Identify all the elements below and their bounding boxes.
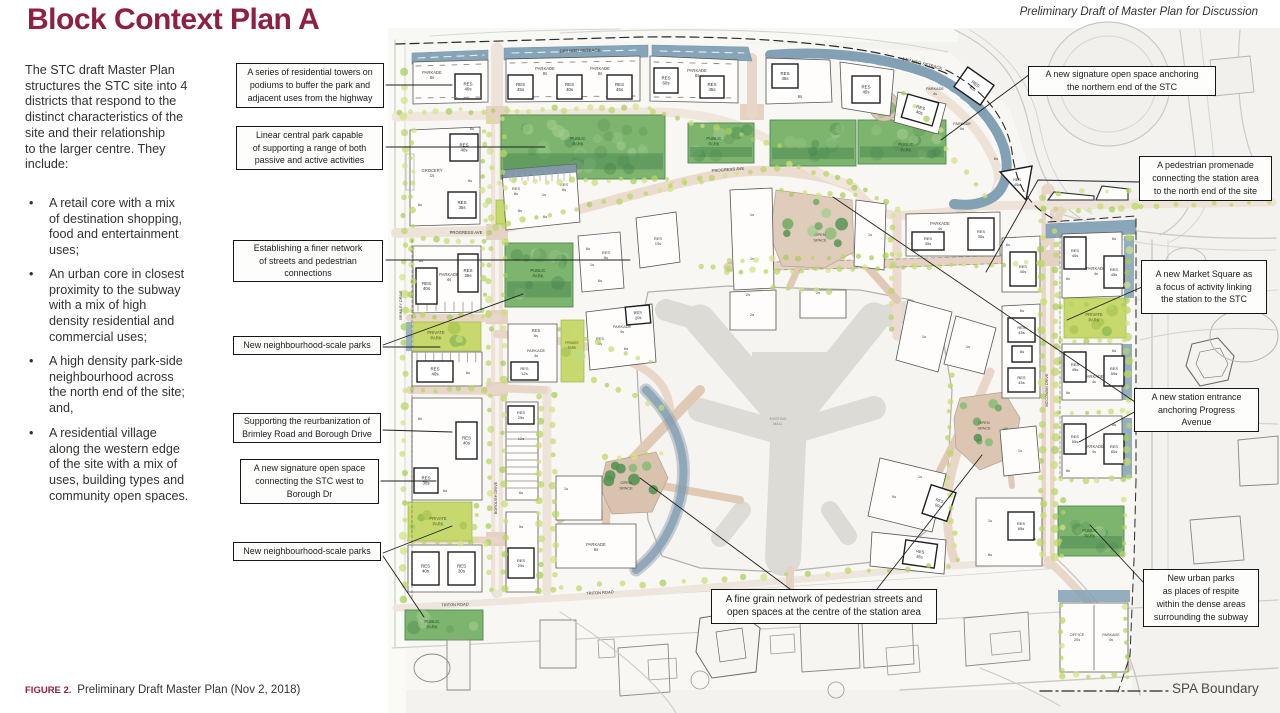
svg-text:2a: 2a <box>750 312 755 317</box>
svg-text:1s: 1s <box>868 232 872 237</box>
svg-text:12s: 12s <box>521 371 527 376</box>
svg-text:PUBLIC: PUBLIC <box>898 142 913 147</box>
svg-text:1s: 1s <box>564 486 568 491</box>
svg-text:45s: 45s <box>616 87 624 92</box>
svg-text:8s: 8s <box>468 178 472 183</box>
svg-text:40s: 40s <box>423 286 431 291</box>
svg-text:RES: RES <box>1013 178 1021 182</box>
svg-text:10s: 10s <box>655 241 661 246</box>
svg-text:PRIVATE: PRIVATE <box>429 516 447 521</box>
svg-text:45s: 45s <box>1018 380 1024 385</box>
svg-text:6s: 6s <box>466 370 470 375</box>
svg-text:25s: 25s <box>464 273 472 278</box>
svg-text:SPACE: SPACE <box>619 486 633 491</box>
svg-text:6s: 6s <box>1066 390 1070 395</box>
svg-text:40s: 40s <box>1072 253 1078 258</box>
svg-text:40s: 40s <box>464 87 472 92</box>
svg-text:1s: 1s <box>988 518 992 523</box>
svg-text:PARKADE: PARKADE <box>926 87 944 91</box>
svg-text:6s: 6s <box>418 202 422 207</box>
svg-text:12s: 12s <box>518 436 524 441</box>
svg-text:45s: 45s <box>862 90 870 95</box>
svg-text:45s: 45s <box>708 87 716 92</box>
svg-text:PUBLIC: PUBLIC <box>530 268 545 273</box>
svg-text:6s: 6s <box>598 278 602 283</box>
svg-text:2s: 2s <box>746 292 750 297</box>
svg-text:8s: 8s <box>418 416 422 421</box>
svg-text:PARK: PARK <box>900 148 911 153</box>
svg-text:PARK: PARK <box>430 336 441 341</box>
svg-text:6s: 6s <box>994 156 998 161</box>
svg-text:20s: 20s <box>635 315 642 321</box>
svg-text:6s: 6s <box>960 127 964 131</box>
svg-text:40s: 40s <box>1020 269 1026 274</box>
svg-text:6s: 6s <box>1112 236 1116 241</box>
svg-text:6s: 6s <box>1006 242 1010 247</box>
svg-text:45s: 45s <box>517 87 525 92</box>
svg-text:PARK: PARK <box>532 274 543 279</box>
svg-text:PRIVATE: PRIVATE <box>427 330 445 335</box>
svg-text:6s: 6s <box>1020 308 1024 313</box>
svg-text:40s: 40s <box>460 148 468 153</box>
svg-text:4s: 4s <box>1109 638 1113 642</box>
svg-text:PARK: PARK <box>1088 318 1099 323</box>
svg-text:PARK: PARK <box>426 625 437 630</box>
svg-text:MALL: MALL <box>773 422 782 426</box>
svg-text:1s: 1s <box>590 262 594 267</box>
svg-text:4s: 4s <box>938 226 942 231</box>
svg-text:PUBLIC: PUBLIC <box>706 136 721 141</box>
svg-text:8s: 8s <box>695 73 699 78</box>
svg-text:PARK: PARK <box>568 346 577 350</box>
svg-text:8s: 8s <box>604 255 608 260</box>
svg-text:SPACE: SPACE <box>813 238 827 243</box>
svg-text:4s: 4s <box>447 277 451 282</box>
svg-text:8s: 8s <box>598 71 602 76</box>
svg-text:40s: 40s <box>422 569 430 574</box>
svg-text:35s: 35s <box>925 241 931 246</box>
svg-text:25s: 25s <box>518 563 524 568</box>
svg-text:45s: 45s <box>1018 330 1024 335</box>
svg-text:8s: 8s <box>518 208 522 213</box>
svg-text:8s: 8s <box>534 333 538 338</box>
svg-text:6s: 6s <box>624 346 628 351</box>
svg-text:EXISTING: EXISTING <box>770 417 787 421</box>
svg-text:5s: 5s <box>519 524 523 529</box>
svg-text:40s: 40s <box>566 87 574 92</box>
svg-text:45s: 45s <box>1014 183 1020 187</box>
svg-text:1s: 1s <box>1018 448 1022 453</box>
svg-text:6s: 6s <box>543 214 547 219</box>
svg-text:9s: 9s <box>892 494 896 499</box>
svg-text:45s: 45s <box>1111 272 1117 277</box>
svg-text:25s: 25s <box>518 415 524 420</box>
svg-text:1s: 1s <box>750 212 754 217</box>
svg-text:55s: 55s <box>1072 439 1078 444</box>
svg-text:BOROUGH DRIVE: BOROUGH DRIVE <box>494 481 498 514</box>
svg-text:6s: 6s <box>519 490 523 495</box>
svg-text:1s: 1s <box>430 173 434 178</box>
svg-text:OPEN: OPEN <box>620 480 631 485</box>
svg-text:4s: 4s <box>1094 271 1098 276</box>
svg-text:PUBLIC: PUBLIC <box>424 619 439 624</box>
svg-text:6s: 6s <box>470 126 474 131</box>
svg-text:1s: 1s <box>918 474 922 479</box>
svg-text:40s: 40s <box>463 441 471 446</box>
svg-text:8s: 8s <box>514 191 518 196</box>
svg-text:TRITON ROAD: TRITON ROAD <box>441 602 469 608</box>
svg-text:OPEN: OPEN <box>814 232 825 237</box>
svg-text:OPEN: OPEN <box>978 420 989 425</box>
svg-text:55s: 55s <box>916 554 923 560</box>
svg-text:6s: 6s <box>1112 348 1116 353</box>
svg-text:PARK: PARK <box>572 142 583 147</box>
svg-text:MCCOWAN DRIVE: MCCOWAN DRIVE <box>1045 373 1049 406</box>
svg-text:30s: 30s <box>422 481 430 486</box>
svg-text:4s: 4s <box>534 353 538 358</box>
svg-text:8s: 8s <box>430 75 434 80</box>
svg-text:45s: 45s <box>1072 367 1078 372</box>
svg-text:20s: 20s <box>1074 637 1080 642</box>
svg-text:4s: 4s <box>1092 379 1096 384</box>
svg-text:1s: 1s <box>542 192 546 197</box>
svg-text:8s: 8s <box>419 258 423 263</box>
svg-text:35s: 35s <box>458 205 466 210</box>
svg-text:65s: 65s <box>1018 526 1024 531</box>
svg-text:PRIVATE: PRIVATE <box>565 341 578 345</box>
svg-text:PRIVATE: PRIVATE <box>1085 312 1103 317</box>
svg-text:14M MTO SETBACK: 14M MTO SETBACK <box>559 48 600 54</box>
svg-text:40s: 40s <box>431 372 439 377</box>
svg-text:PROGRESS AVE: PROGRESS AVE <box>450 230 483 235</box>
svg-text:PARK: PARK <box>1084 534 1095 539</box>
svg-text:8s: 8s <box>562 187 566 192</box>
svg-text:4s: 4s <box>620 329 624 334</box>
svg-text:45s: 45s <box>781 76 789 81</box>
svg-text:8s: 8s <box>1020 349 1024 354</box>
svg-text:6s: 6s <box>798 94 802 99</box>
svg-text:8s: 8s <box>1066 468 1070 473</box>
svg-text:6s: 6s <box>1066 276 1070 281</box>
svg-text:6s: 6s <box>594 547 598 552</box>
svg-text:PARK: PARK <box>708 142 719 147</box>
svg-text:6s: 6s <box>443 488 447 493</box>
svg-text:30s: 30s <box>458 569 466 574</box>
svg-text:SPACE: SPACE <box>977 426 991 431</box>
svg-text:1s: 1s <box>966 344 970 349</box>
svg-text:PARKADE: PARKADE <box>1102 633 1120 637</box>
svg-text:8s: 8s <box>543 71 547 76</box>
svg-text:4s: 4s <box>1092 449 1096 454</box>
svg-text:35s: 35s <box>978 234 984 239</box>
svg-text:8s: 8s <box>988 552 992 557</box>
svg-text:60s: 60s <box>1111 449 1117 454</box>
svg-text:60s: 60s <box>662 81 670 86</box>
svg-text:4s: 4s <box>933 92 937 96</box>
svg-text:PARK: PARK <box>432 522 443 527</box>
svg-text:BRIMLEY DRIVE: BRIMLEY DRIVE <box>399 290 403 320</box>
svg-text:PUBLIC: PUBLIC <box>570 136 585 141</box>
svg-text:1s: 1s <box>922 334 926 339</box>
svg-text:50s: 50s <box>1111 371 1117 376</box>
svg-text:6s: 6s <box>586 246 590 251</box>
